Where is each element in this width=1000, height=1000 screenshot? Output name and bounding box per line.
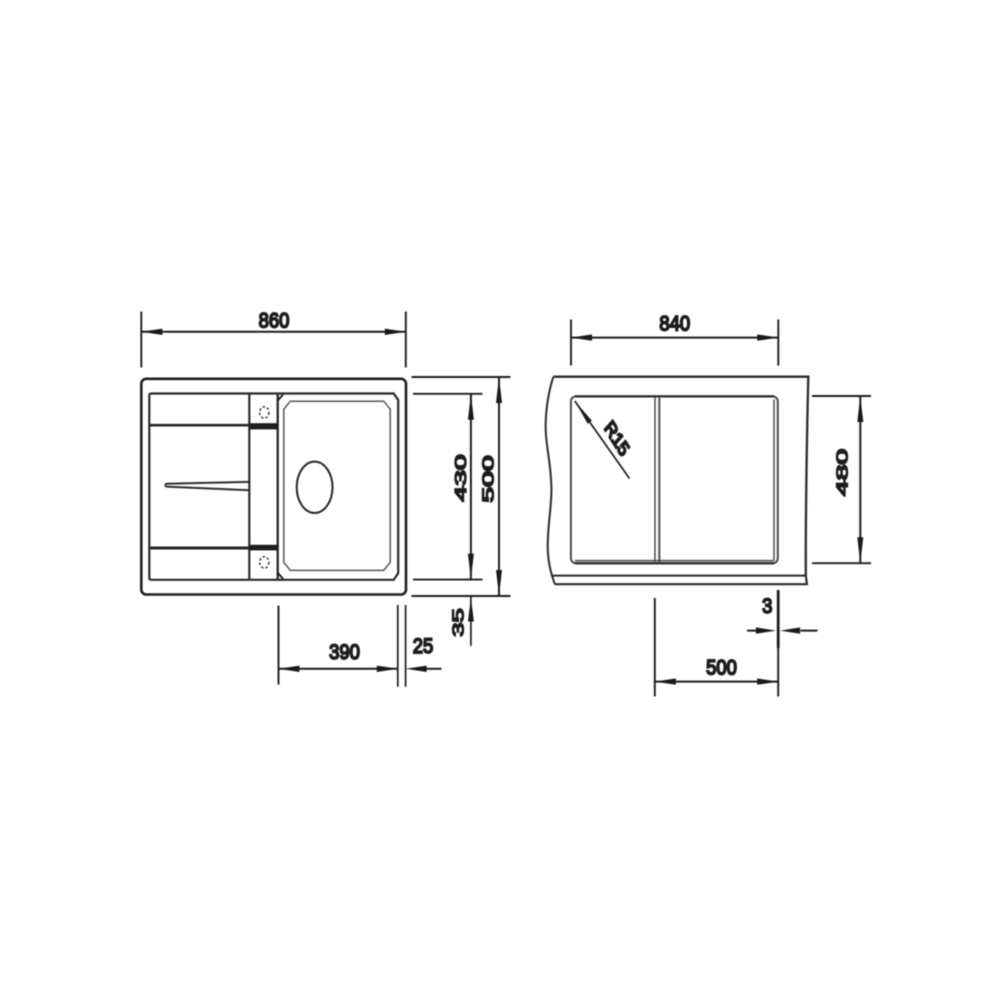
svg-text:3: 3: [762, 595, 772, 619]
svg-text:480: 480: [833, 449, 851, 496]
svg-text:430: 430: [452, 454, 470, 501]
svg-text:500: 500: [706, 656, 737, 680]
svg-text:R15: R15: [601, 416, 633, 461]
svg-text:500: 500: [479, 455, 497, 502]
svg-text:860: 860: [259, 309, 290, 333]
svg-text:390: 390: [329, 641, 360, 665]
svg-text:25: 25: [413, 634, 433, 658]
svg-text:35: 35: [450, 608, 467, 636]
svg-text:840: 840: [659, 312, 690, 336]
